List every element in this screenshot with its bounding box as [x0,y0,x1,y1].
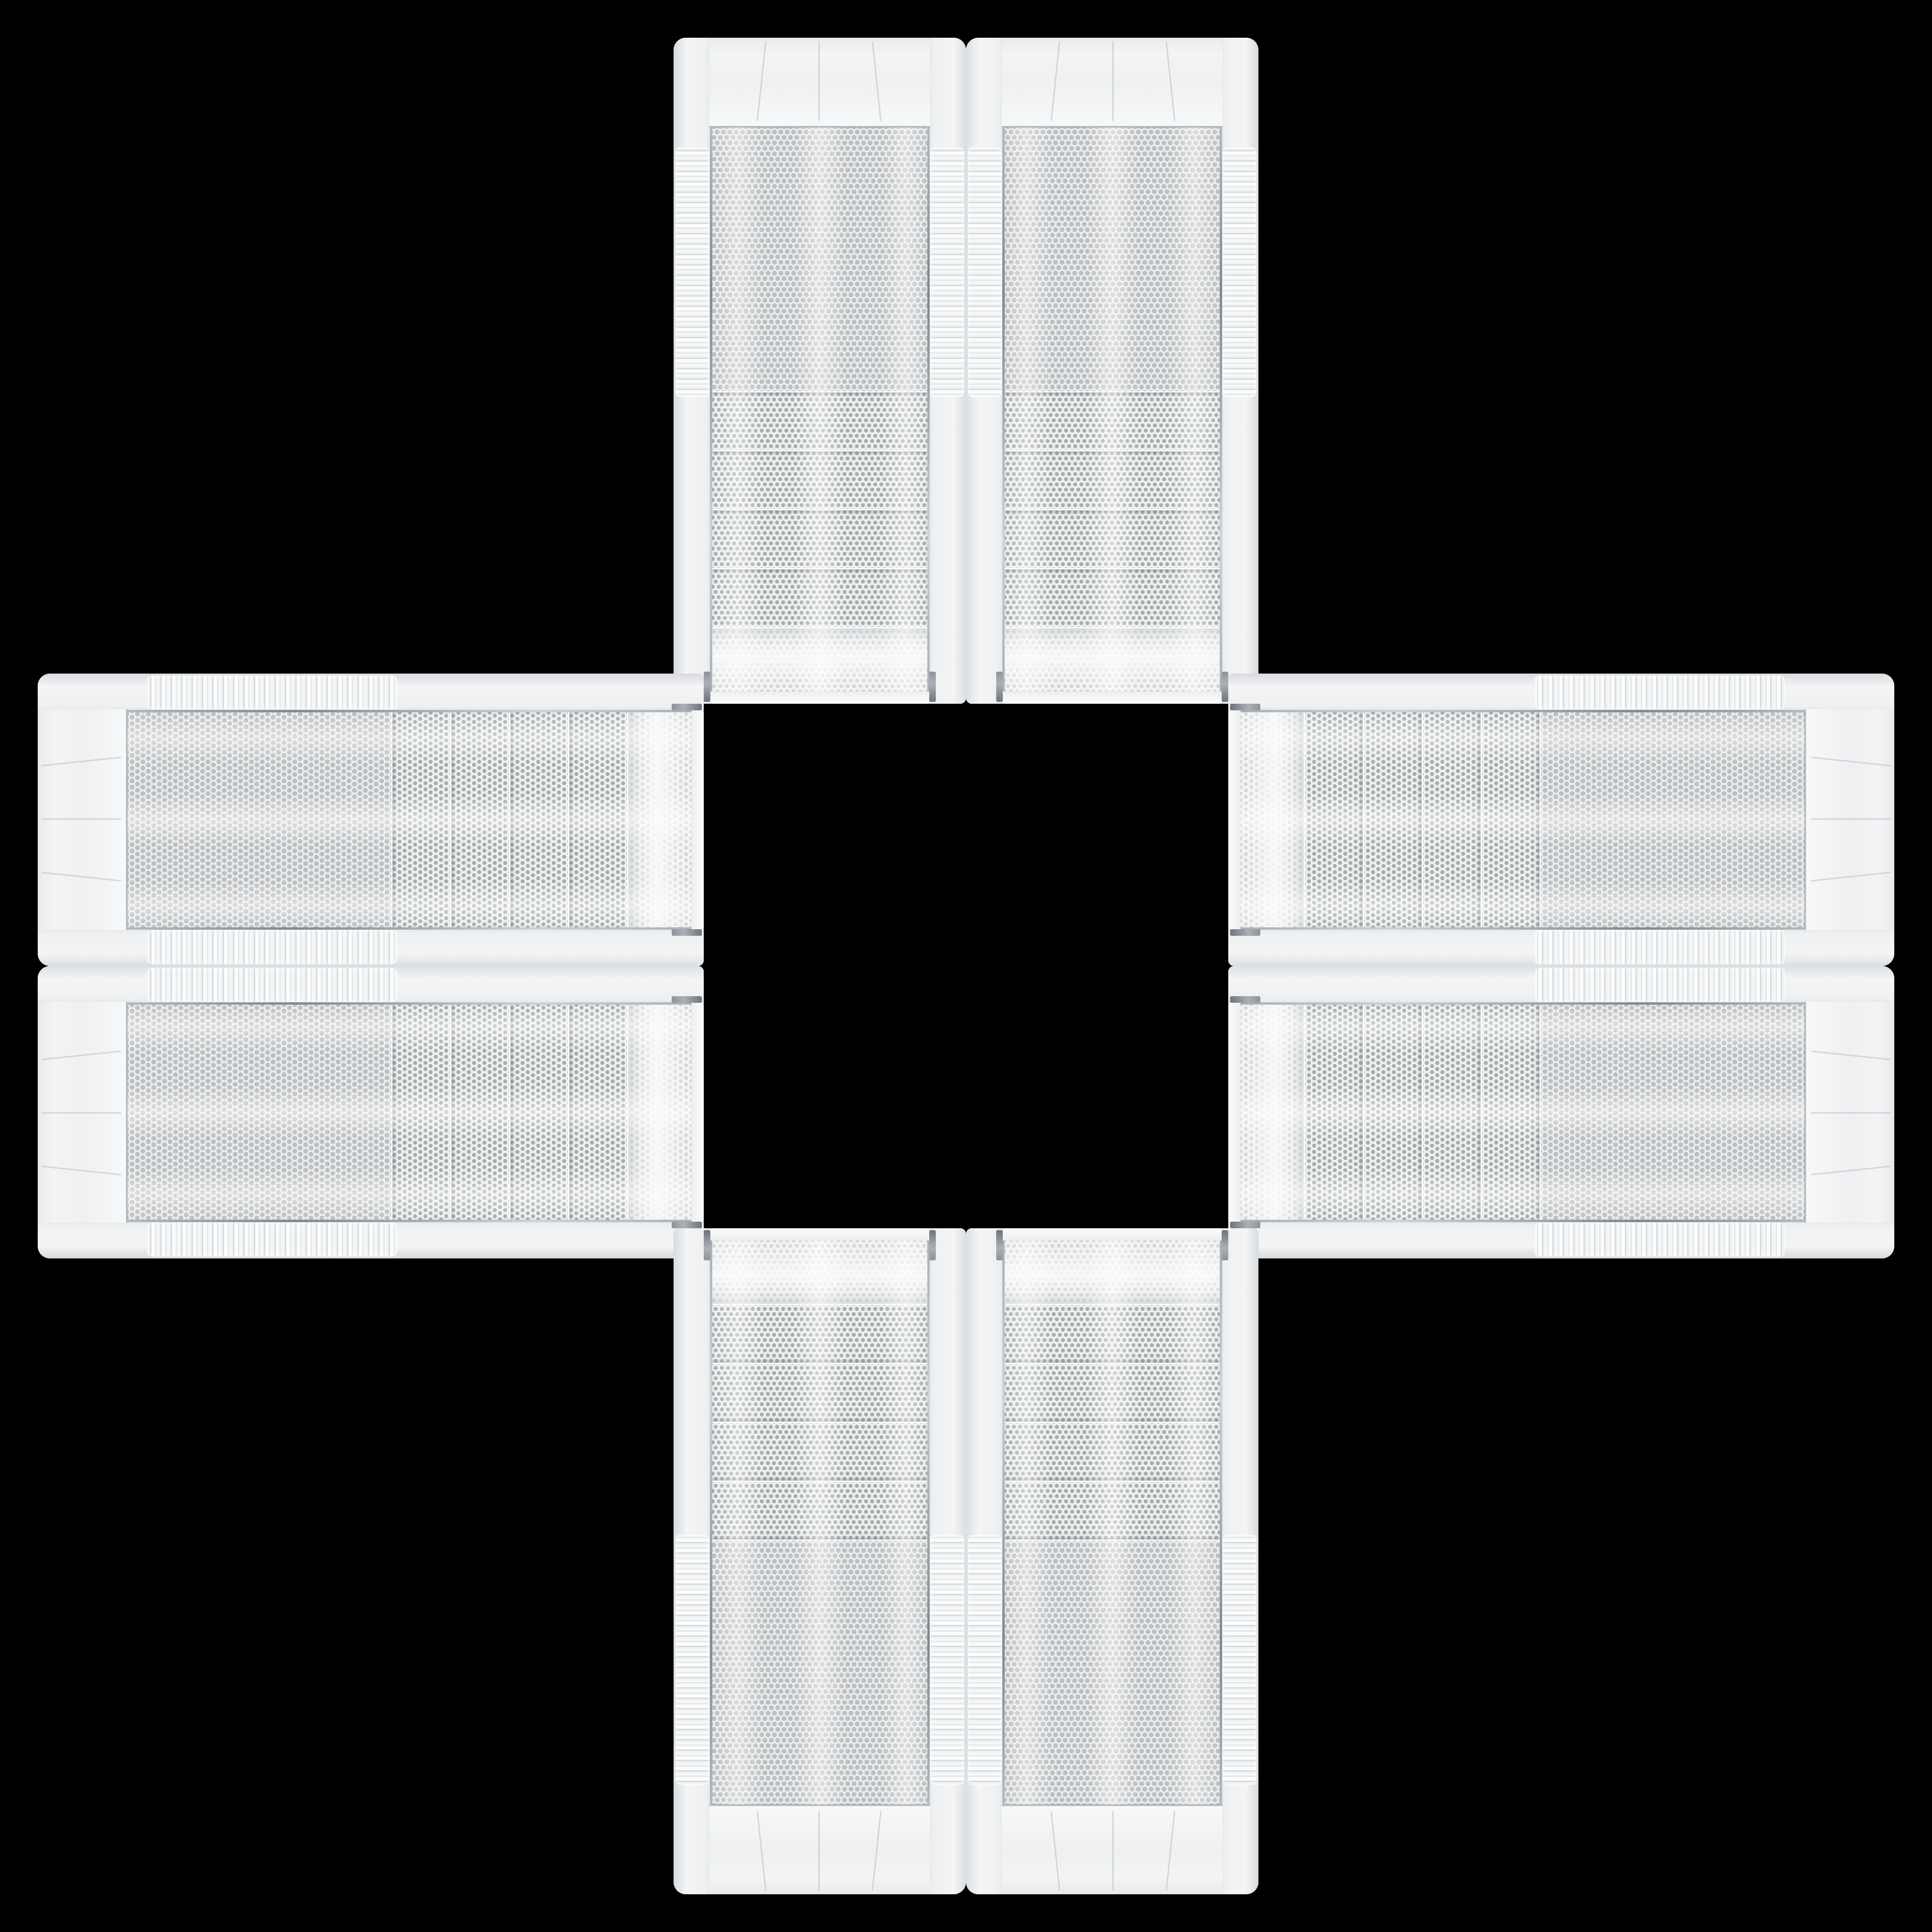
drive-bays [712,1304,927,1540]
cap-facet-seam [41,818,121,820]
inner-rim [1228,1002,1241,1223]
drive-bay-cover [1422,712,1481,927]
front-mesh-panel: COOLER MASTER [1005,127,1220,392]
drive-bay-cover [392,1005,451,1220]
bezel-ribs [147,675,397,709]
outer-cap [38,1002,127,1223]
cap-facet-seam [1811,1050,1890,1060]
front-panel: COOLER MASTER [1005,1228,1220,1894]
hinge-left [1230,996,1260,1003]
bezel-ribs [968,1535,1002,1785]
intake-vent [1005,628,1220,691]
intake-vent [712,1241,927,1304]
bezel-right-column [38,674,704,711]
hinge-right [704,672,710,702]
front-mesh-panel: COOLER MASTER [1540,1005,1805,1220]
hinge-right [1230,1222,1260,1228]
drive-bay-cover [1422,1005,1481,1220]
bezel-ribs [147,930,397,964]
hinge-left [1230,929,1260,936]
drive-bay-cover [712,1481,927,1540]
front-mesh-panel: COOLER MASTER [127,712,392,927]
bezel-ribs [930,1535,964,1785]
cap-facet-seam [1811,1112,1891,1114]
drive-bay-cover [1363,1005,1422,1220]
cap-facet-seam [1166,41,1175,121]
outer-cap [1805,709,1894,930]
bezel-right-column [1228,1221,1894,1258]
hinge-right [704,1230,710,1260]
bezel-ribs [1223,1535,1257,1785]
inner-rim [1228,709,1241,930]
hinge-right [1222,672,1228,702]
bezel-right-column [674,38,711,704]
intake-vent [628,1005,691,1220]
outer-cap [709,1805,930,1894]
drive-bays [392,1005,628,1220]
drive-bay-cover [712,569,927,628]
pc-case-photo: COOLER MASTER [674,38,966,704]
drive-bay-cover [451,1005,510,1220]
bezel-right-column [38,1221,704,1258]
cap-facet-seam [41,757,121,766]
cap-facet-seam [41,1050,121,1060]
pc-case-photo: COOLER MASTER [1228,966,1894,1258]
intake-vent [1241,712,1304,927]
drive-bay-cover [1005,392,1220,451]
drive-bays [392,712,628,927]
hinge-left [996,1230,1003,1260]
bezel-ribs [1223,147,1257,397]
front-panel: COOLER MASTER [1228,712,1894,927]
drive-bay-cover [712,1363,927,1422]
bezel-ribs [1535,968,1785,1002]
bezel-ribs [147,1223,397,1257]
cap-facet-seam [41,872,121,882]
inner-rim [691,709,704,930]
bezel-ribs [930,147,964,397]
bezel-ribs [675,147,709,397]
chrome-trim-left [927,1232,930,1813]
cap-facet-seam [757,1811,766,1890]
chrome-trim-left [1232,927,1813,930]
inner-rim [1002,1228,1223,1241]
hinge-left [929,672,936,702]
cap-facet-seam [41,1112,121,1114]
drive-bay-cover [1005,1304,1220,1363]
bezel-left-column [928,1228,966,1894]
hinge-right [672,704,702,710]
front-mesh-panel: COOLER MASTER [712,1540,927,1805]
drive-bay-cover [1363,712,1422,927]
drive-bay-cover [569,712,628,927]
outer-cap [709,38,930,127]
bezel-left-column [966,38,1004,704]
front-panel: COOLER MASTER [38,1005,704,1220]
inner-rim [1002,691,1223,704]
pc-case-photo: COOLER MASTER [38,674,704,966]
bezel-ribs [675,1535,709,1785]
front-panel: COOLER MASTER [38,712,704,927]
drive-bay-cover [712,510,927,569]
outer-cap [1002,38,1223,127]
bezel-ribs [1535,1223,1785,1257]
bezel-ribs [968,147,1002,397]
drive-bay-cover [510,1005,569,1220]
front-mesh-panel: COOLER MASTER [127,1005,392,1220]
bezel-right-column [674,1228,711,1894]
hinge-right [672,1222,702,1228]
chrome-trim-right [1232,1220,1813,1222]
drive-bay-cover [569,1005,628,1220]
cap-facet-seam [1166,1811,1175,1890]
cap-facet-seam [872,1811,882,1890]
drive-bay-cover [712,1304,927,1363]
cap-facet-seam [757,41,766,121]
outer-cap [1805,1002,1894,1223]
cap-facet-seam [1050,41,1060,121]
drive-bays [1304,712,1540,927]
bezel-right-column [1228,674,1894,711]
bezel-left-column [1228,928,1894,966]
drive-bays [712,392,927,628]
inner-rim [709,691,930,704]
bezel-ribs [147,968,397,1002]
bezel-left-column [38,966,704,1004]
bezel-left-column [928,38,966,704]
front-mesh-panel: COOLER MASTER [712,127,927,392]
drive-bays [1304,1005,1540,1220]
drive-bay-cover [1304,712,1363,927]
chrome-trim-right [1220,119,1222,700]
pc-case-photo: COOLER MASTER [1228,674,1894,966]
chrome-trim-left [927,119,930,700]
drive-bay-cover [1005,569,1220,628]
cap-facet-seam [872,41,882,121]
outer-cap [38,709,127,930]
bezel-left-column [966,1228,1004,1894]
cap-facet-seam [1811,757,1890,766]
drive-bay-cover [510,712,569,927]
inner-rim [709,1228,930,1241]
intake-vent [628,712,691,927]
drive-bay-cover [712,392,927,451]
hinge-left [929,1230,936,1260]
bezel-ribs [1535,930,1785,964]
pc-case-photo: COOLER MASTER [966,38,1258,704]
drive-bay-cover [1304,1005,1363,1220]
intake-vent [1241,1005,1304,1220]
drive-bay-cover [712,1422,927,1481]
chrome-trim-right [119,1220,700,1222]
hinge-right [1222,1230,1228,1260]
drive-bay-cover [1005,510,1220,569]
outer-cap [1002,1805,1223,1894]
drive-bay-cover [1005,451,1220,510]
bezel-left-column [1228,966,1894,1004]
product-collage: COOLER MASTER [0,0,1932,1932]
drive-bay-cover [451,712,510,927]
cap-facet-seam [1811,872,1890,882]
cap-facet-seam [1112,41,1114,121]
hinge-right [1230,704,1260,710]
drive-bay-cover [1481,1005,1540,1220]
cap-facet-seam [1811,1166,1890,1175]
drive-bay-cover [1005,1422,1220,1481]
drive-bays [1005,392,1220,628]
cap-facet-seam [1050,1811,1060,1890]
bezel-right-column [1221,1228,1258,1894]
drive-bay-cover [392,712,451,927]
cap-facet-seam [818,41,820,121]
drive-bay-cover [1005,1481,1220,1540]
hinge-left [672,996,702,1003]
front-mesh-panel: COOLER MASTER [1005,1540,1220,1805]
drive-bays [1005,1304,1220,1540]
front-panel: COOLER MASTER [1228,1005,1894,1220]
intake-vent [712,628,927,691]
pc-case-photo: COOLER MASTER [38,966,704,1258]
front-panel: COOLER MASTER [712,38,927,704]
intake-vent [1005,1241,1220,1304]
drive-bay-cover [1481,712,1540,927]
cap-facet-seam [818,1811,820,1891]
drive-bay-cover [712,451,927,510]
inner-rim [691,1002,704,1223]
front-panel: COOLER MASTER [1005,38,1220,704]
bezel-right-column [1221,38,1258,704]
hinge-left [996,672,1003,702]
cap-facet-seam [1112,1811,1114,1891]
cap-facet-seam [1811,818,1891,820]
bezel-ribs [1535,675,1785,709]
drive-bay-cover [1005,1363,1220,1422]
chrome-trim-right [1220,1232,1222,1813]
front-mesh-panel: COOLER MASTER [1540,712,1805,927]
pc-case-photo: COOLER MASTER [966,1228,1258,1894]
bezel-left-column [38,928,704,966]
hinge-left [672,929,702,936]
pc-case-photo: COOLER MASTER [674,1228,966,1894]
cap-facet-seam [41,1166,121,1175]
front-panel: COOLER MASTER [712,1228,927,1894]
chrome-trim-left [119,927,700,930]
